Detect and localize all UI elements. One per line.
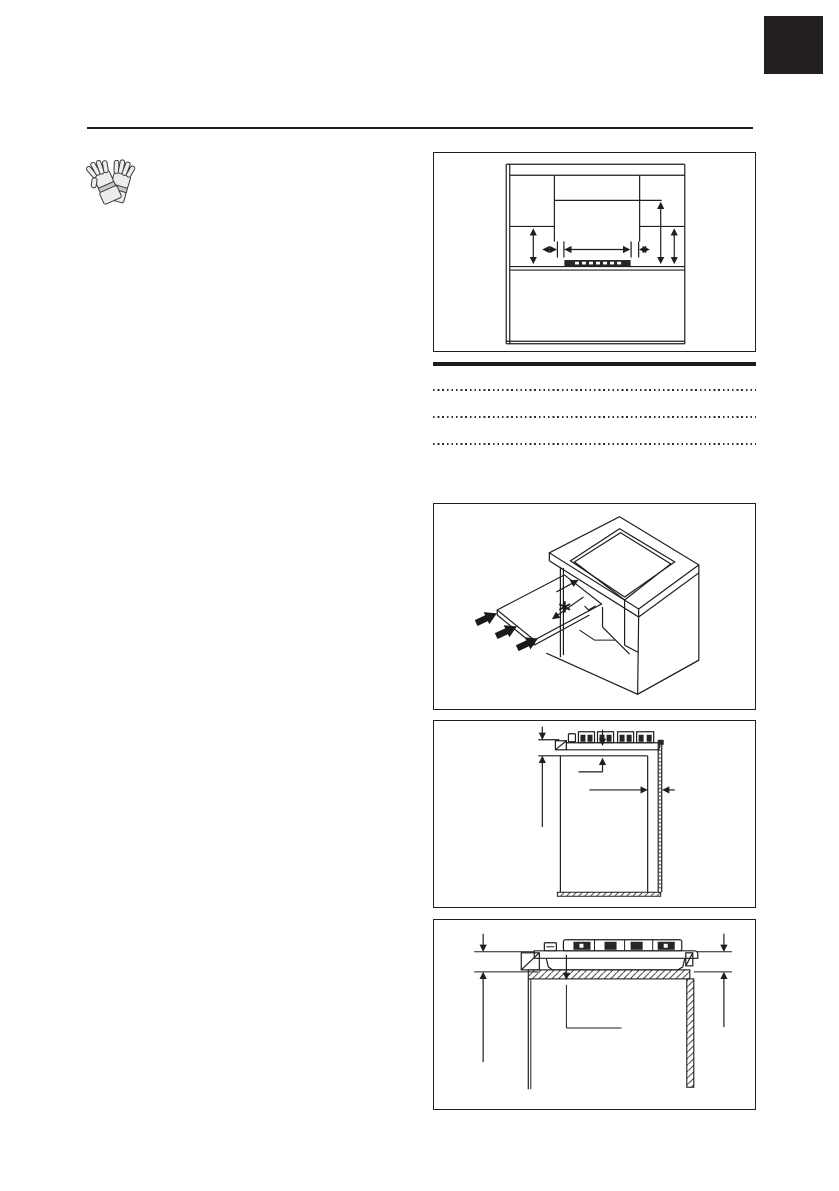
worktop-seal-drawing [434,920,755,1109]
page-corner-tab [764,16,823,74]
side-wall-section [658,740,664,892]
figure-front-clearances [433,152,756,352]
figure-shelf-insertion-3d: * [433,503,756,710]
asterisk-annotation: * [558,597,571,625]
cabinet-walls-section [528,979,694,1089]
worktop-section [521,953,693,979]
header-rule [87,127,753,129]
front-clearances-drawing [434,153,755,351]
right-height-dimension [694,934,732,1027]
cabinet-section-drawing [434,721,755,907]
protective-gloves-icon [86,156,142,214]
hob-top-detail [534,940,698,970]
seal-leader [566,955,621,1028]
shelf-insertion-drawing: * [434,504,755,709]
write-in-line [433,443,756,445]
figure-cabinet-section [433,720,756,908]
write-in-line [433,389,756,391]
write-in-line [433,416,756,418]
section-divider [433,362,756,366]
figure-worktop-seal-section [433,919,756,1110]
height-dimension [538,727,559,827]
insertion-arrows-icon [473,607,540,654]
hob-section [566,732,659,750]
manual-page: { "page": { "background": "#ffffff", "in… [0,0,839,1191]
